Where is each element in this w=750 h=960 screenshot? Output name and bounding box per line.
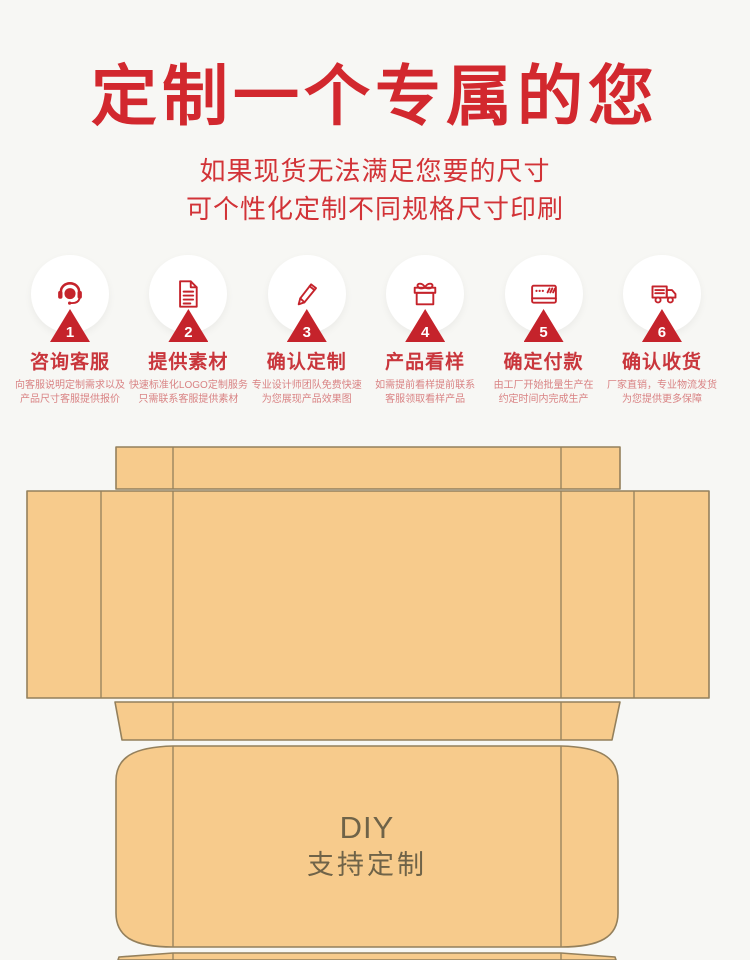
diy-panel	[116, 746, 618, 947]
step-item-2: 2 提供素材 快速标准化LOGO定制服务 只需联系客服提供素材	[132, 255, 244, 407]
credit-card-icon	[525, 275, 563, 313]
step-item-4: 4 产品看样 如需提前看样提前联系 客服领取看样产品	[369, 255, 481, 407]
step-description-line1: 由工厂开始批量生产在	[494, 379, 594, 393]
step-title: 确定付款	[504, 347, 584, 374]
step-number: 3	[303, 324, 311, 342]
step-number: 6	[658, 324, 666, 342]
step-title: 产品看样	[385, 347, 465, 374]
step-description-line2: 只需联系客服提供素材	[138, 393, 238, 407]
step-number: 4	[421, 324, 429, 342]
gift-icon	[406, 275, 444, 313]
diy-label-line1: DIY	[340, 810, 395, 845]
diy-label-line2: 支持定制	[307, 850, 427, 880]
step-description-line2: 为您提供更多保障	[622, 393, 702, 407]
step-item-1: 1 咨询客服 向客服说明定制需求以及 产品尺寸客服提供报价	[14, 255, 126, 407]
subtitle-line-1: 如果现货无法满足您要的尺寸	[0, 152, 750, 190]
box-dieline-diagram: DIY 支持定制	[0, 430, 750, 960]
step-title: 提供素材	[148, 347, 228, 374]
step-description-line2: 客服领取看样产品	[385, 393, 465, 407]
process-steps-row: 1 咨询客服 向客服说明定制需求以及 产品尺寸客服提供报价 2 提供素材	[0, 255, 750, 407]
step-number: 5	[539, 324, 547, 342]
glue-strip	[115, 702, 620, 740]
step-description-line1: 专业设计师团队免费快速	[252, 379, 362, 393]
step-description-line1: 向客服说明定制需求以及	[15, 379, 125, 393]
page-subtitle: 如果现货无法满足您要的尺寸 可个性化定制不同规格尺寸印刷	[0, 152, 750, 228]
step-title: 确认收货	[622, 347, 702, 374]
step-description-line2: 为您展现产品效果图	[262, 393, 352, 407]
truck-icon	[643, 275, 681, 313]
step-title: 确认定制	[267, 347, 347, 374]
pencil-icon	[288, 275, 326, 313]
step-item-5: 5 确定付款 由工厂开始批量生产在 约定时间内完成生产	[488, 255, 600, 407]
step-description-line1: 快速标准化LOGO定制服务	[129, 379, 248, 393]
step-description-line2: 约定时间内完成生产	[499, 393, 589, 407]
bottom-strip	[118, 953, 616, 960]
step-item-6: 6 确认收货 厂家直销，专业物流发货 为您提供更多保障	[606, 255, 718, 407]
subtitle-line-2: 可个性化定制不同规格尺寸印刷	[0, 190, 750, 228]
document-icon	[169, 275, 207, 313]
step-description-line1: 厂家直销，专业物流发货	[607, 379, 717, 393]
page-title: 定制一个专属的您	[0, 60, 750, 132]
step-item-3: 3 确认定制 专业设计师团队免费快速 为您展现产品效果图	[251, 255, 363, 407]
step-description-line1: 如需提前看样提前联系	[375, 379, 475, 393]
top-flaps-strip	[116, 447, 620, 489]
step-number: 2	[184, 324, 192, 342]
headset-agent-icon	[51, 275, 89, 313]
step-description-line2: 产品尺寸客服提供报价	[20, 393, 120, 407]
custom-box-promo-page: 定制一个专属的您 如果现货无法满足您要的尺寸 可个性化定制不同规格尺寸印刷 1 …	[0, 0, 750, 960]
step-number: 1	[66, 324, 74, 342]
step-title: 咨询客服	[30, 347, 110, 374]
main-panels	[27, 491, 709, 698]
